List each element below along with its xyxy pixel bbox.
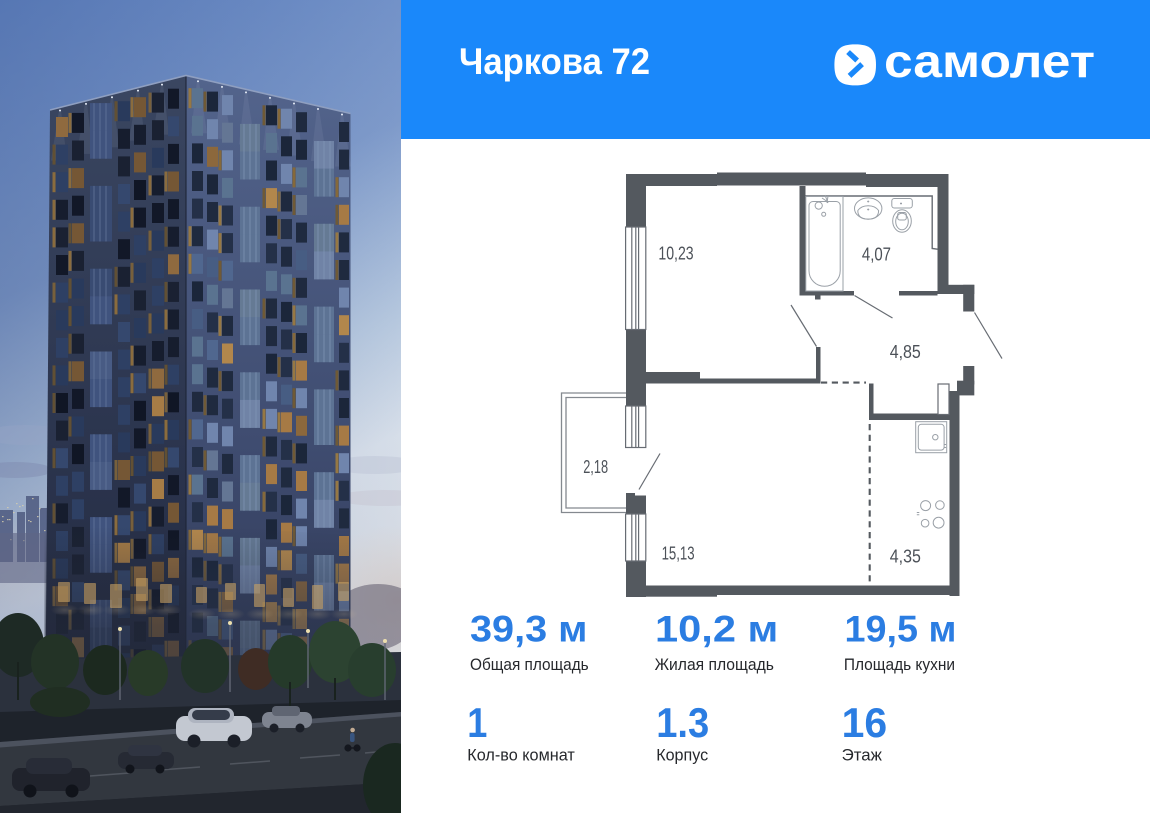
svg-text:15,13: 15,13	[662, 544, 695, 564]
svg-text:1: 1	[467, 699, 487, 746]
svg-text:10,2 м: 10,2 м	[655, 609, 778, 650]
svg-text:Чаркова 72: Чаркова 72	[459, 41, 650, 82]
svg-text:1.3: 1.3	[656, 699, 709, 746]
svg-text:Корпус: Корпус	[656, 746, 708, 764]
svg-text:16: 16	[842, 699, 888, 746]
svg-text:2,18: 2,18	[583, 457, 608, 477]
svg-text:Площадь кухни: Площадь кухни	[844, 656, 955, 674]
svg-text:4,07: 4,07	[862, 245, 891, 265]
svg-text:самолет: самолет	[884, 35, 1095, 87]
svg-text:Жилая площадь: Жилая площадь	[655, 656, 774, 674]
svg-text:39,3 м: 39,3 м	[470, 609, 588, 650]
svg-text:Общая площадь: Общая площадь	[470, 656, 589, 674]
svg-text:10,23: 10,23	[658, 243, 693, 263]
svg-text:4,35: 4,35	[890, 547, 921, 567]
svg-text:Этаж: Этаж	[842, 746, 882, 764]
svg-text:19,5 м: 19,5 м	[845, 609, 957, 650]
svg-text:Кол-во комнат: Кол-во комнат	[467, 746, 575, 764]
svg-text:4,85: 4,85	[890, 342, 921, 362]
